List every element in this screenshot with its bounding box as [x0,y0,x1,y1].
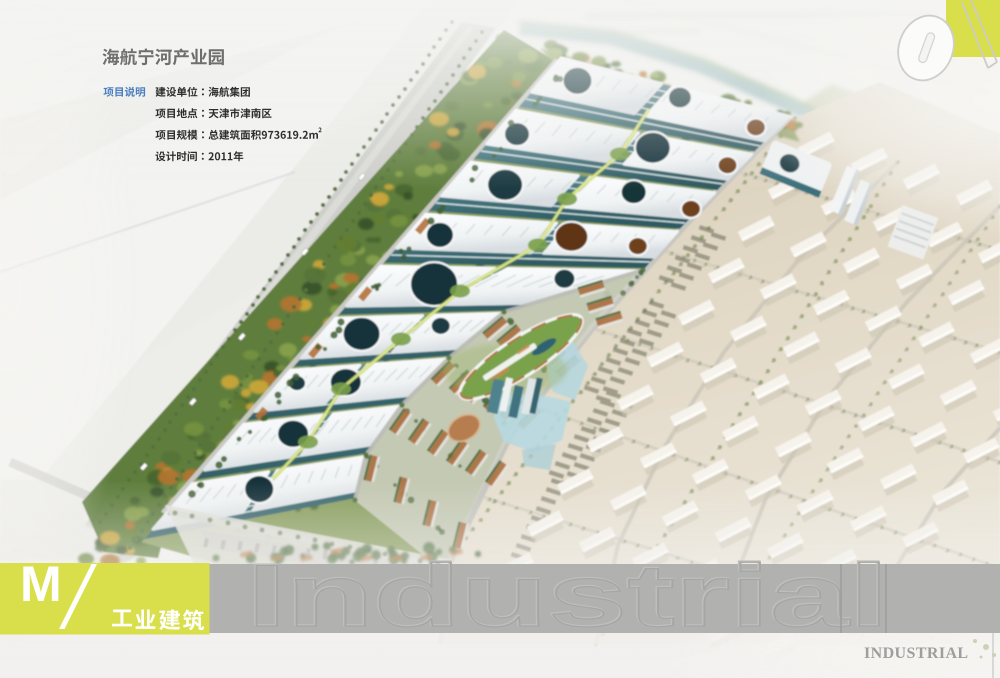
svg-text:M: M [20,556,62,612]
svg-text:INDUSTRIAL: INDUSTRIAL [864,645,968,662]
svg-text:Industrial: Industrial [247,546,889,645]
